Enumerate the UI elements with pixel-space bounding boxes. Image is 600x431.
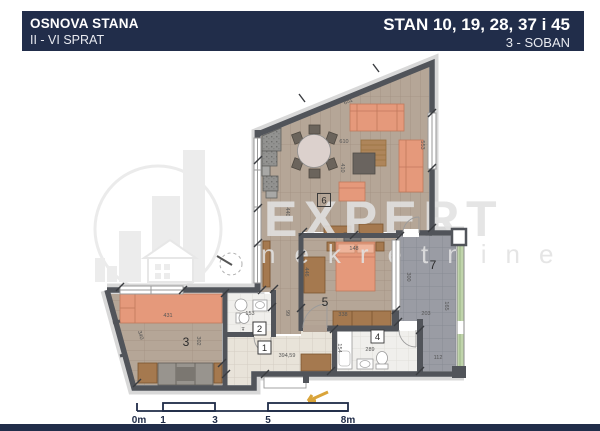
svg-text:553: 553 <box>419 140 425 149</box>
svg-text:3: 3 <box>183 335 190 349</box>
svg-text:410: 410 <box>339 163 345 172</box>
svg-text:6: 6 <box>321 196 326 207</box>
svg-text:2: 2 <box>257 324 262 335</box>
svg-text:4: 4 <box>375 332 380 343</box>
svg-text:153: 153 <box>245 311 254 317</box>
svg-text:338: 338 <box>338 312 347 318</box>
svg-text:610: 610 <box>339 139 348 145</box>
svg-text:5: 5 <box>322 295 329 309</box>
svg-text:394,59: 394,59 <box>279 353 296 359</box>
svg-text:431: 431 <box>163 313 172 319</box>
svg-text:112: 112 <box>434 355 443 361</box>
svg-text:289: 289 <box>365 347 374 353</box>
svg-text:300: 300 <box>405 272 411 281</box>
svg-text:99: 99 <box>284 310 290 316</box>
svg-text:1: 1 <box>262 343 267 354</box>
svg-text:7: 7 <box>430 258 437 272</box>
svg-text:165: 165 <box>443 301 449 310</box>
svg-text:302: 302 <box>195 336 201 345</box>
svg-text:203: 203 <box>421 311 430 317</box>
svg-text:nekretnine: nekretnine <box>261 239 572 269</box>
